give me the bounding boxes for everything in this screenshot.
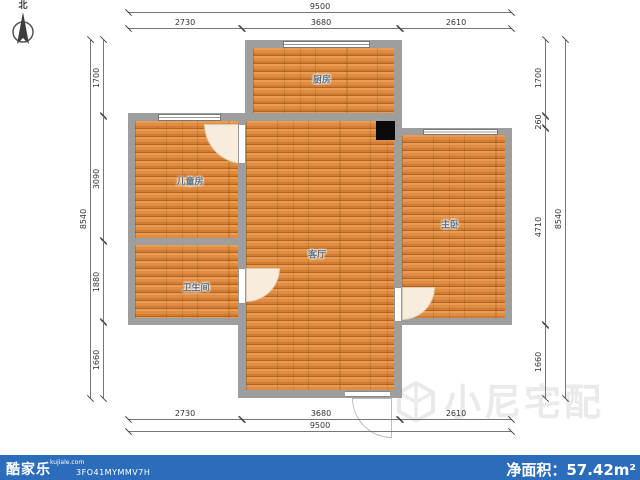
wall-children-bath-divider [128,238,246,245]
room-label-children: 儿童房 [176,175,203,188]
dim-left-seg1: 1700 [103,40,104,116]
room-label-living: 客厅 [308,248,326,261]
kujiale-logo: 酷家乐 [6,459,51,479]
dim-bottom-total: 9500 [128,431,512,432]
wall-kitchen-left [245,40,253,121]
dim-left-seg3: 1880 [103,241,104,322]
room-label-kitchen: 厨房 [313,73,331,86]
dim-right-seg4: 1660 [545,325,546,398]
wall-left-outer [128,113,135,325]
entrance-door-arc [352,398,392,438]
wall-master-right [505,128,512,325]
dim-right-seg3: 4710 [545,128,546,325]
wall-right-spine [394,40,402,398]
compass-north-label: 北 [6,2,40,11]
dim-bottom-seg3: 2610 [400,419,512,420]
compass-arrow-icon [9,11,37,47]
flue-column [376,121,395,140]
master-window [423,129,498,135]
footer-bar: 酷家乐 kujiale.com 3FO41MYMMV7H 净面积：57.42m² [0,455,640,480]
wall-master-bottom [402,318,512,325]
net-area: 净面积：57.42m² [506,459,636,480]
dim-right-total: 8540 [565,40,566,398]
dim-top-total: 9500 [128,12,512,13]
dim-left-total: 8540 [90,40,91,398]
bathroom-door-leaf [238,268,246,304]
watermark: 小尼宅配 [394,380,604,424]
floorplan-page: { "compass": { "label": "北" }, "rooms": … [0,0,640,480]
kujiale-domain: kujiale.com [50,459,84,466]
dim-bottom-seg1: 2730 [128,419,242,420]
watermark-text: 小尼宅配 [444,384,604,421]
compass: 北 [6,2,40,51]
net-area-value: 57.42m² [566,461,636,479]
dim-top-seg1: 2730 [128,28,242,29]
children-window [158,114,221,121]
room-label-bathroom: 卫生间 [182,281,209,294]
dim-bottom-seg2: 3680 [242,419,400,420]
dim-left-seg2: 3090 [103,116,104,241]
wall-bath-bottom [128,318,246,325]
dim-top-seg2: 3680 [242,28,400,29]
dim-top-seg3: 2610 [400,28,512,29]
dim-left-seg4: 1660 [103,322,104,398]
room-label-master: 主卧 [441,218,459,231]
wall-kitchen-bottom [246,113,394,121]
kitchen-window [283,41,370,48]
dim-right-seg1: 1700 [545,40,546,116]
entrance-opening [345,391,390,397]
plan-code: 3FO41MYMMV7H [76,468,150,477]
children-door-leaf [238,124,246,164]
net-area-label: 净面积： [506,461,566,479]
master-door-leaf [394,287,402,322]
